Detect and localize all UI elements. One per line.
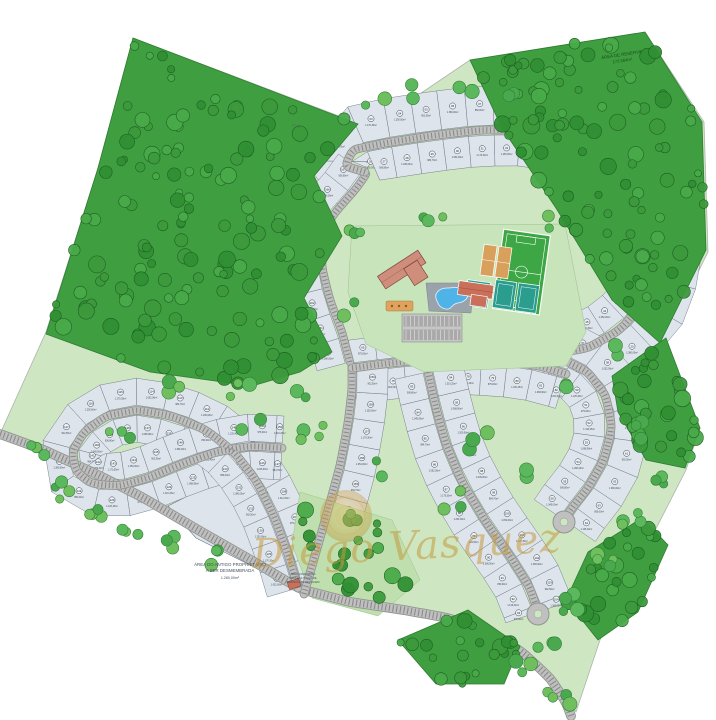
- tree: [158, 273, 171, 286]
- tree: [55, 476, 67, 488]
- tree: [535, 146, 548, 159]
- tree: [610, 114, 626, 130]
- tree: [254, 413, 266, 425]
- lot-number: 156: [359, 456, 364, 460]
- lot-number: 20: [630, 344, 634, 348]
- tree: [531, 88, 547, 104]
- tree: [310, 337, 317, 344]
- tree: [620, 179, 630, 189]
- lot-number: 98: [480, 469, 484, 473]
- tree: [545, 224, 554, 233]
- tree: [251, 269, 261, 279]
- tree: [211, 546, 221, 556]
- lot-area: 1.250,00m²: [85, 409, 97, 412]
- lot-number: 80: [515, 379, 519, 383]
- tree: [455, 486, 465, 496]
- tree: [376, 471, 387, 482]
- tree: [117, 157, 126, 166]
- tree: [219, 251, 236, 268]
- lot-area: 1.170,30m²: [365, 124, 377, 127]
- tree: [407, 92, 420, 105]
- lot-area: 1.250,00m²: [128, 465, 140, 468]
- lot-area: 1.250,00m²: [501, 153, 513, 156]
- lot-area: 1.200,00m²: [550, 395, 562, 398]
- tree: [343, 577, 359, 593]
- lot-number: 123: [191, 475, 196, 479]
- lot-number: 133: [223, 467, 228, 471]
- lot-number: 62: [613, 480, 617, 484]
- tree: [158, 361, 171, 374]
- tree: [477, 72, 489, 84]
- lot-number: 78: [466, 375, 470, 379]
- lot-area: 1.125,40m²: [581, 528, 593, 531]
- tree: [456, 637, 464, 645]
- tree: [695, 170, 702, 177]
- tree: [472, 670, 479, 677]
- tree: [297, 502, 313, 518]
- tree: [661, 406, 675, 420]
- tree: [625, 72, 636, 83]
- lot-area: 1.045,00m²: [201, 414, 213, 417]
- tree: [157, 51, 167, 61]
- tree: [148, 259, 156, 267]
- lot-area: 1.310,25m²: [583, 428, 595, 431]
- lot-area: 1.170,30m²: [361, 437, 373, 440]
- tree: [622, 572, 637, 587]
- tree: [655, 213, 664, 222]
- tree: [422, 215, 434, 227]
- lot-area: 1.310,25m²: [278, 497, 290, 500]
- lot-number: 07: [478, 102, 482, 106]
- lot-area: 902,50m²: [246, 513, 256, 516]
- tree: [162, 145, 172, 155]
- lot-number: 93: [517, 611, 521, 615]
- tree: [246, 215, 254, 223]
- tree: [152, 327, 167, 342]
- lot-number: 159: [370, 375, 375, 379]
- lot-area: 902,50m²: [421, 115, 431, 118]
- tree: [638, 206, 646, 214]
- lot-number: 120: [110, 498, 115, 502]
- lot-number: 87: [445, 487, 449, 491]
- tree: [171, 148, 180, 157]
- tree: [660, 173, 674, 187]
- site-plan-map: 01984,70m²021.052,00m²031.170,30m²041.25…: [0, 0, 716, 720]
- tree: [655, 144, 663, 152]
- tree: [167, 66, 174, 73]
- lot-area: 936,80m²: [379, 167, 389, 170]
- tree: [465, 84, 479, 98]
- lot-number: 82: [555, 388, 559, 392]
- tree: [648, 573, 656, 581]
- tree: [373, 591, 385, 603]
- lot-number: 32: [505, 146, 509, 150]
- lot-area: 1.380,00m²: [447, 111, 459, 114]
- tree: [593, 554, 603, 564]
- lot-number: 119: [77, 489, 82, 493]
- lot-number: 144: [131, 458, 136, 462]
- lot-number: 143: [111, 462, 116, 466]
- tree: [117, 427, 127, 437]
- lot-area: 1.380,00m²: [609, 487, 621, 490]
- tree: [586, 565, 596, 575]
- tree: [563, 191, 574, 202]
- tree: [457, 613, 472, 628]
- tree: [39, 450, 50, 461]
- lot-number: 92: [512, 597, 516, 601]
- lot-number: 145: [154, 450, 159, 454]
- tree: [509, 116, 517, 124]
- forest-area: [46, 38, 358, 386]
- tree: [78, 303, 94, 319]
- tree: [649, 263, 658, 272]
- tree: [307, 352, 316, 361]
- tree: [587, 124, 602, 139]
- tree: [270, 166, 284, 180]
- tree: [505, 54, 516, 65]
- tree: [581, 48, 595, 62]
- tree: [607, 82, 618, 93]
- tree: [175, 291, 189, 305]
- cul-de-sac-island: [534, 610, 542, 618]
- tree: [604, 560, 616, 572]
- lot-area: 984,70m²: [273, 469, 283, 472]
- lot-number: 84: [416, 410, 420, 414]
- lot-area: 936,80m²: [407, 392, 417, 395]
- tree: [295, 307, 308, 320]
- lot-number: 137: [145, 426, 150, 430]
- tree: [604, 210, 612, 218]
- tree: [608, 338, 622, 352]
- lot-area: 984,70m²: [175, 403, 185, 406]
- lot-number: 155: [353, 482, 358, 486]
- lot-number: 56: [551, 497, 555, 501]
- lot-number: 44: [603, 309, 607, 313]
- tree: [207, 326, 217, 336]
- tree: [168, 74, 175, 81]
- tree: [475, 638, 484, 647]
- lot-number: 131: [248, 506, 253, 510]
- tree: [503, 90, 515, 102]
- tree: [651, 231, 664, 244]
- lot-area: 902,50m²: [62, 432, 72, 435]
- tree: [142, 243, 151, 252]
- lot-number: 58: [606, 361, 610, 365]
- tree: [338, 113, 350, 125]
- tree: [636, 250, 649, 263]
- lot-number: 141: [90, 453, 95, 457]
- tree: [628, 160, 637, 169]
- lot-area: 1.310,25m²: [445, 383, 457, 386]
- tree: [510, 639, 518, 647]
- lot-number: 30: [456, 149, 460, 153]
- lot-number: 31: [481, 147, 485, 151]
- tree: [631, 366, 639, 374]
- tree: [519, 463, 533, 477]
- tree: [220, 271, 228, 279]
- tree: [267, 348, 279, 360]
- lot-area: 1.310,25m²: [511, 386, 523, 389]
- tree: [211, 94, 220, 103]
- tree: [559, 380, 573, 394]
- tree: [509, 654, 523, 668]
- lot-area: 1.380,00m²: [550, 604, 562, 607]
- tree: [466, 432, 480, 446]
- tree: [179, 212, 189, 222]
- tree: [217, 285, 229, 297]
- lot-number: 85: [424, 436, 428, 440]
- lot-area: 1.200,00m²: [457, 431, 469, 434]
- tree: [364, 582, 373, 591]
- lot-number: 28: [405, 156, 409, 160]
- tree: [286, 168, 299, 181]
- tree: [533, 642, 543, 652]
- lot-number: 146: [178, 441, 183, 445]
- tree: [196, 368, 204, 376]
- tree: [690, 416, 699, 425]
- tree: [558, 109, 567, 118]
- tree: [161, 535, 172, 546]
- tree: [234, 379, 243, 388]
- tree: [543, 67, 556, 80]
- tree: [559, 607, 568, 616]
- lot-area: 1.170,30m²: [107, 469, 119, 472]
- tree: [429, 654, 437, 662]
- tree: [233, 233, 249, 249]
- tree: [480, 426, 494, 440]
- tree: [499, 78, 507, 86]
- tree: [123, 101, 132, 110]
- lot-number: 53: [585, 441, 589, 445]
- tree: [197, 101, 206, 110]
- tree: [220, 167, 236, 183]
- tree: [598, 102, 607, 111]
- lot-area: 1.250,00m²: [365, 410, 377, 413]
- tree: [301, 393, 310, 402]
- tree: [56, 495, 64, 503]
- tree: [256, 319, 264, 327]
- tree: [655, 441, 666, 452]
- tree: [185, 167, 194, 176]
- tree: [296, 434, 306, 444]
- tree: [184, 204, 194, 214]
- tree: [559, 592, 571, 604]
- lot-area: 1.045,00m²: [546, 504, 558, 507]
- tree: [600, 252, 613, 265]
- tree: [677, 448, 686, 457]
- tree: [603, 229, 612, 238]
- lot-number: 158: [368, 403, 373, 407]
- tree: [158, 221, 168, 231]
- tree: [168, 168, 181, 181]
- lot-number: 100: [505, 512, 510, 516]
- tree: [321, 142, 335, 156]
- tree: [238, 141, 254, 157]
- lot-area: 1.250,00m²: [394, 119, 406, 122]
- tree: [570, 223, 583, 236]
- tree: [81, 213, 92, 224]
- tree: [515, 62, 522, 69]
- tree: [673, 377, 687, 391]
- tree: [665, 295, 672, 302]
- tree: [604, 537, 616, 549]
- lot-area: 1.068,90m²: [581, 448, 593, 451]
- lot-area: 1.052,00m²: [599, 316, 611, 319]
- tree: [528, 115, 538, 125]
- tree: [674, 390, 691, 407]
- tree: [179, 322, 194, 337]
- lot-number: 132: [237, 486, 242, 490]
- lot-number: 115: [118, 390, 123, 394]
- tree: [288, 106, 297, 115]
- tree: [441, 615, 452, 626]
- lot-area: 902,50m²: [622, 459, 632, 462]
- tree: [600, 158, 616, 174]
- lot-number: 65: [361, 346, 365, 350]
- lot-area: 902,50m²: [368, 382, 378, 385]
- tree: [633, 508, 642, 517]
- lot-area: 902,50m²: [151, 457, 161, 460]
- tree: [265, 337, 274, 346]
- tree: [272, 367, 289, 384]
- lot-area: 1.045,00m²: [401, 163, 413, 166]
- lot-area: 1.125,40m²: [106, 505, 118, 508]
- tree: [617, 519, 627, 529]
- lot-number: 27: [382, 160, 386, 164]
- tree: [571, 603, 585, 617]
- tree: [548, 637, 562, 651]
- tree: [563, 697, 577, 711]
- tree: [542, 210, 554, 222]
- tree: [595, 191, 602, 198]
- lot-number: 150: [277, 425, 282, 429]
- tree: [578, 148, 586, 156]
- tree: [681, 186, 693, 198]
- tree: [169, 313, 182, 326]
- tree: [677, 285, 690, 298]
- tree: [319, 421, 327, 429]
- lot-number: 64: [585, 521, 589, 525]
- lot-area: 1.068,90m²: [187, 483, 199, 486]
- tree: [134, 272, 148, 286]
- tree: [585, 254, 594, 263]
- tree: [688, 105, 695, 112]
- lot-number: 04: [398, 111, 402, 115]
- tree: [184, 193, 193, 202]
- lot-area: 1.380,00m²: [322, 357, 334, 360]
- lot-area: 1.170,30m²: [476, 154, 488, 157]
- tree: [350, 298, 359, 307]
- tree: [117, 354, 126, 363]
- lot-area: 902,50m²: [545, 588, 555, 591]
- tree: [174, 381, 185, 392]
- lot-area: 975,00m²: [257, 431, 267, 434]
- lot-area: 1.380,00m²: [233, 493, 245, 496]
- tree: [313, 191, 325, 203]
- lot-number: 114: [149, 390, 154, 394]
- tree: [139, 314, 152, 327]
- tree: [494, 116, 510, 132]
- tree: [612, 577, 621, 586]
- lot-number: 96: [462, 424, 466, 428]
- tree: [554, 51, 566, 63]
- tree: [628, 147, 644, 163]
- tree: [130, 42, 139, 51]
- lot-number: 91: [501, 576, 505, 580]
- tree: [505, 131, 513, 139]
- lot-number: 140: [94, 443, 99, 447]
- tree: [655, 92, 671, 108]
- tree: [170, 193, 185, 208]
- tree: [489, 649, 499, 659]
- lot-number: 116: [88, 402, 93, 406]
- club-area: [348, 224, 586, 372]
- tree: [176, 109, 189, 122]
- parking-lot: [402, 314, 462, 342]
- lot-area: 1.125,40m²: [571, 395, 583, 398]
- tree: [64, 486, 75, 497]
- tree: [606, 271, 616, 281]
- tree: [164, 294, 173, 303]
- lot-number: 117: [64, 425, 69, 429]
- tree: [52, 301, 59, 308]
- tree: [631, 420, 641, 430]
- lot-area: 1.125,40m²: [507, 604, 519, 607]
- tree: [132, 330, 145, 343]
- tree: [686, 116, 696, 126]
- tree: [635, 279, 647, 291]
- tree: [635, 432, 648, 445]
- tree: [699, 200, 708, 209]
- tree: [637, 596, 647, 606]
- tree: [616, 614, 628, 626]
- tree: [689, 180, 697, 188]
- lot-number: 51: [584, 403, 588, 407]
- tree: [629, 197, 639, 207]
- tree: [378, 92, 392, 106]
- tree: [69, 244, 81, 256]
- tree: [623, 529, 631, 537]
- tree: [146, 52, 153, 59]
- tree: [619, 239, 632, 252]
- tree: [635, 516, 646, 527]
- tree: [438, 503, 450, 515]
- tree: [622, 393, 633, 404]
- lot-area: 975,00m²: [514, 618, 524, 621]
- tree: [291, 263, 308, 280]
- tree: [100, 166, 113, 179]
- lot-number: 99: [492, 491, 496, 495]
- lot-area: 936,80m²: [339, 175, 349, 178]
- lot-area: 984,70m²: [489, 498, 499, 501]
- old-owner-line2: A SER DESMEMBRADA: [206, 568, 255, 573]
- tree: [516, 147, 527, 158]
- lot-area: 1.310,25m²: [274, 432, 286, 435]
- tree: [337, 309, 350, 322]
- tree: [688, 427, 699, 438]
- lot-area: 850,00m²: [201, 439, 211, 442]
- lot-area: 1.052,00m²: [452, 156, 464, 159]
- lot-number: 79: [491, 376, 495, 380]
- tree: [518, 668, 527, 677]
- tree: [315, 249, 324, 258]
- lot-area: 936,80m²: [560, 486, 570, 489]
- lot-number: 75: [391, 379, 395, 383]
- tree: [455, 501, 466, 512]
- lot-area: 1.052,00m²: [356, 463, 368, 466]
- tree: [632, 547, 644, 559]
- lot-area: 850,00m²: [220, 474, 230, 477]
